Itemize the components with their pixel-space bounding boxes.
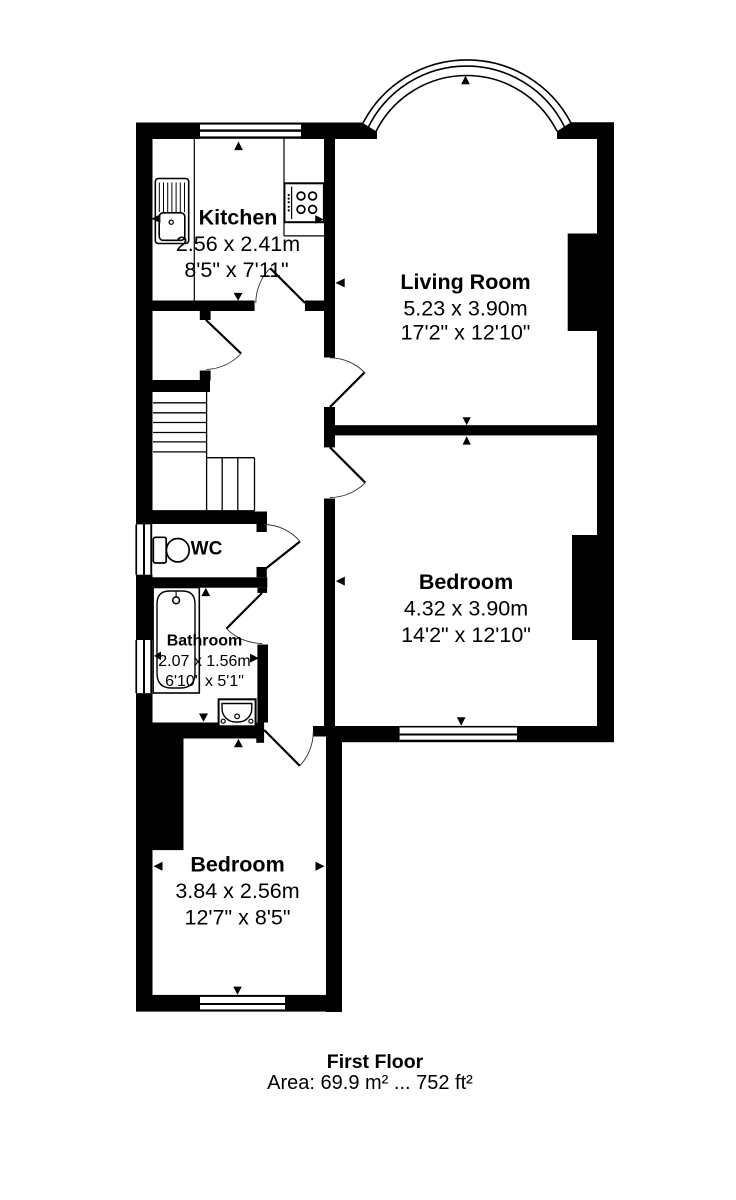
- svg-text:First Floor: First Floor: [327, 1051, 424, 1073]
- svg-text:6'10" x 5'1": 6'10" x 5'1": [165, 673, 244, 690]
- svg-text:Bedroom: Bedroom: [190, 852, 284, 876]
- svg-text:12'7" x 8'5": 12'7" x 8'5": [185, 905, 291, 929]
- svg-text:3.84 x 2.56m: 3.84 x 2.56m: [175, 879, 299, 903]
- svg-text:17'2" x 12'10": 17'2" x 12'10": [401, 321, 531, 345]
- svg-text:Kitchen: Kitchen: [199, 205, 278, 229]
- svg-text:2.07 x 1.56m: 2.07 x 1.56m: [158, 653, 251, 670]
- svg-text:Bathroom: Bathroom: [167, 632, 243, 649]
- svg-text:4.32 x 3.90m: 4.32 x 3.90m: [404, 597, 528, 621]
- svg-text:8'5" x 7'11": 8'5" x 7'11": [184, 258, 288, 282]
- svg-text:14'2" x 12'10": 14'2" x 12'10": [401, 623, 531, 647]
- svg-text:Living Room: Living Room: [400, 270, 530, 294]
- svg-text:5.23 x 3.90m: 5.23 x 3.90m: [403, 296, 527, 320]
- svg-text:Area: 69.9 m² ... 752 ft²: Area: 69.9 m² ... 752 ft²: [267, 1072, 473, 1094]
- svg-text:WC: WC: [191, 538, 223, 559]
- svg-text:Bedroom: Bedroom: [419, 570, 513, 594]
- svg-text:2.56 x 2.41m: 2.56 x 2.41m: [176, 232, 300, 256]
